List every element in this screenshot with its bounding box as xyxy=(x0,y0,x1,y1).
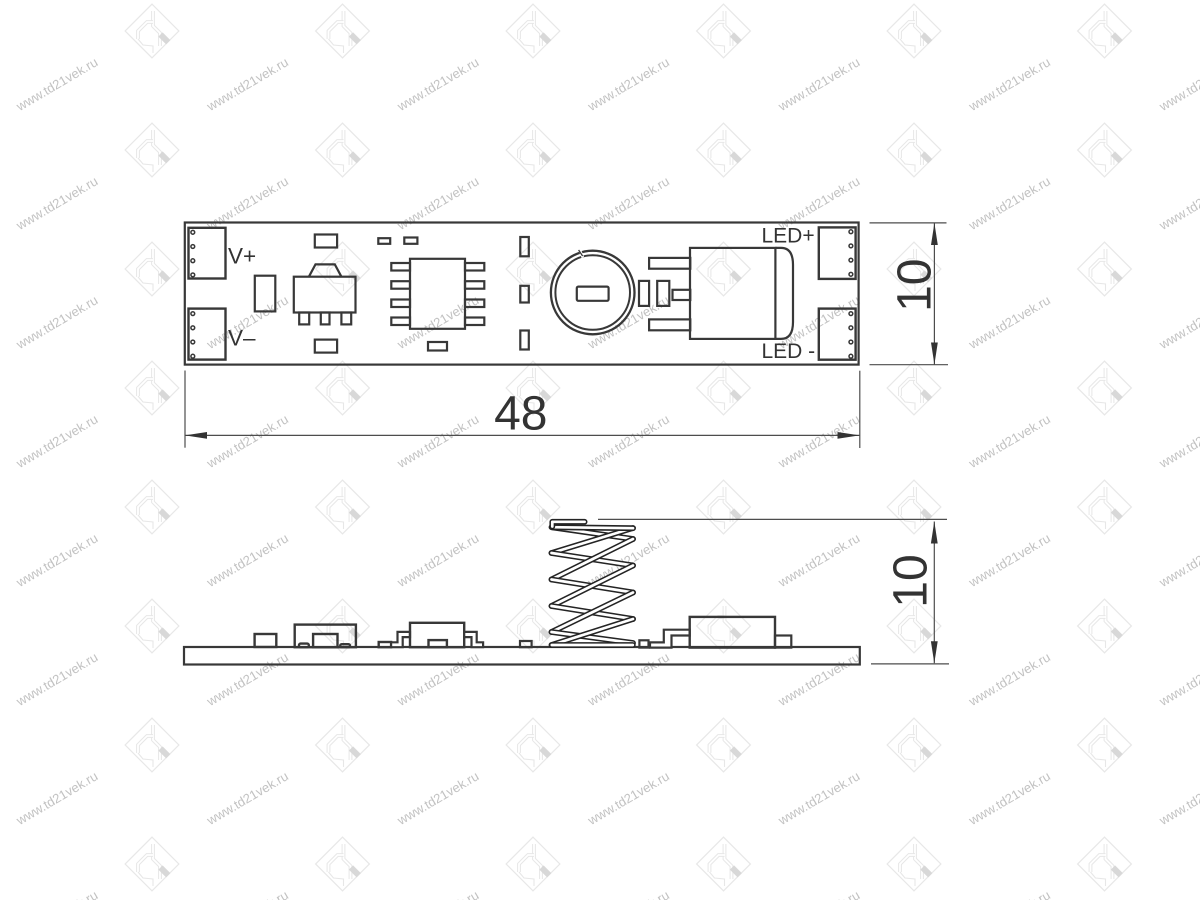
svg-text:LED+: LED+ xyxy=(762,225,815,248)
svg-text:LED -: LED - xyxy=(762,340,816,363)
svg-text:10: 10 xyxy=(885,554,938,607)
svg-text:48: 48 xyxy=(494,388,547,441)
svg-text:V–: V– xyxy=(228,326,256,351)
svg-text:V+: V+ xyxy=(228,244,256,269)
svg-text:10: 10 xyxy=(889,259,942,312)
